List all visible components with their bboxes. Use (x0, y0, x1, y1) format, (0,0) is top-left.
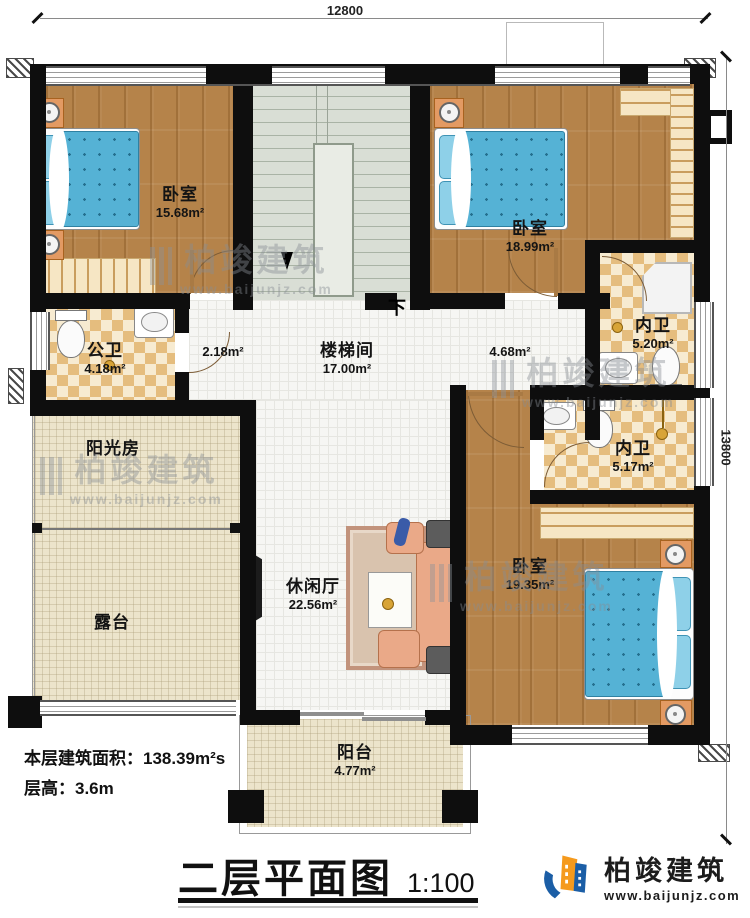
stair-well (313, 143, 354, 297)
wall-stairs-bedroom2 (410, 64, 430, 310)
balcony-name: 阳台 (337, 742, 373, 763)
balcony-area: 4.77m² (334, 763, 375, 779)
sink (598, 352, 638, 384)
room-label-bedroom3: 卧室 19.35m² (470, 556, 590, 594)
bath-public-area: 4.18m² (84, 361, 125, 377)
column-balcony-right (442, 790, 478, 823)
window-bath-public-west (30, 312, 50, 370)
sink (134, 306, 174, 338)
logo-building-icon (540, 848, 596, 904)
wall-pier-north-3 (620, 64, 648, 84)
wall-bedroom2-bottom-left (430, 293, 505, 309)
bath-lower-area: 5.17m² (612, 459, 653, 475)
room-label-bath-lower: 内卫 5.17m² (578, 438, 688, 476)
closet-shelf-bedroom2 (620, 88, 672, 116)
bath-lower-name: 内卫 (615, 438, 651, 459)
hall-left-area-label: 2.18m² (178, 344, 268, 360)
wall-lounge-bottom-left (240, 710, 300, 725)
logo-brand-name: 柏竣建筑 (604, 849, 740, 888)
stairwell-name: 楼梯间 (320, 340, 374, 361)
table-decor (382, 598, 394, 610)
wall-bedroom3-bottom-left (450, 725, 512, 745)
wardrobe-bedroom2 (670, 88, 694, 238)
wall-pier-north-2 (385, 64, 495, 84)
lamp-icon (665, 704, 686, 725)
wall-bath-upper-top (585, 240, 694, 253)
room-label-balcony: 阳台 4.77m² (310, 742, 400, 780)
bed-bedroom2 (434, 128, 568, 230)
hall-right-area-label: 4.68m² (460, 344, 560, 360)
top-dimension-label: 12800 (300, 3, 390, 18)
lounge-name: 休闲厅 (286, 576, 340, 597)
divider-post (32, 523, 42, 533)
door-leaf-bedroom3 (468, 392, 523, 396)
shower-rod (662, 400, 664, 428)
hall-right-area: 4.68m² (489, 344, 530, 360)
wall-lounge-left (240, 400, 256, 725)
wall-bedroom3-bottom-right (648, 725, 710, 745)
room-label-terrace: 露台 (62, 612, 162, 633)
floor-area-text: 本层建筑面积：138.39m²s (24, 744, 225, 769)
bedroom3-name: 卧室 (512, 556, 548, 577)
title-underline (178, 898, 478, 903)
sliding-door-panel (300, 712, 364, 716)
drawing-scale: 1:100 (407, 868, 475, 899)
drawing-title: 二层平面图 (178, 846, 393, 904)
room-label-bath-public: 公卫 4.18m² (50, 340, 160, 378)
sheet-fold (451, 128, 471, 230)
bedroom1-area: 15.68m² (156, 205, 204, 221)
wall-bath-public-right-upper (175, 293, 189, 333)
room-label-bath-upper: 内卫 5.20m² (608, 315, 698, 353)
room-label-stairwell: 楼梯间 17.00m² (292, 340, 402, 378)
bedroom1-name: 卧室 (162, 184, 198, 205)
column-balcony-left (228, 790, 264, 823)
window-bedroom3-south (512, 727, 648, 745)
window-box-glass (711, 116, 727, 138)
room-label-sunroom: 阳光房 (58, 438, 168, 459)
terrace-name: 露台 (94, 612, 130, 633)
stairwell-area: 17.00m² (323, 361, 371, 377)
sliding-door-panel (362, 717, 426, 721)
bedroom2-area: 18.99m² (506, 239, 554, 255)
nightstand (434, 98, 464, 128)
wall-bedroom1-bottom (30, 293, 190, 309)
floor-plan: 12800 13800 (0, 0, 750, 918)
bedroom2-name: 卧室 (512, 218, 548, 239)
shower-tray (642, 262, 692, 314)
wall-bath-upper-left (585, 253, 600, 440)
lamp-icon (665, 544, 686, 565)
right-dimension-label: 13800 (719, 426, 734, 470)
room-label-lounge: 休闲厅 22.56m² (258, 576, 368, 614)
closet-bedroom3 (540, 507, 694, 539)
bath-public-name: 公卫 (87, 340, 123, 361)
wall-sunroom-top (30, 400, 256, 416)
wall-bath-lower-top (530, 385, 694, 400)
bath-upper-area: 5.20m² (632, 336, 673, 352)
room-label-bedroom1: 卧室 15.68m² (115, 184, 245, 222)
sheet-fold (657, 568, 677, 700)
title-underline-thin (178, 906, 478, 908)
blanket (463, 131, 565, 227)
armchair (378, 630, 420, 668)
window-bath-lower-east (694, 398, 714, 486)
top-dimension-line (40, 18, 708, 19)
door-leaf-bedroom1 (190, 250, 194, 293)
room-label-bedroom2: 卧室 18.99m² (460, 218, 600, 256)
nightstand (660, 700, 692, 728)
hatch-left-mid (8, 368, 24, 404)
lamp-icon (439, 102, 460, 123)
stair-direction-arrow (281, 252, 293, 270)
bed-bedroom3 (584, 568, 694, 700)
nightstand (660, 540, 692, 568)
column-terrace (8, 696, 42, 728)
wall-bedroom2-bottom-right (558, 293, 610, 309)
stair-landing-divider (316, 84, 328, 143)
wall-bath-lower-bottom (530, 490, 694, 504)
bath-upper-name: 内卫 (635, 315, 671, 336)
company-logo: 柏竣建筑 www.baijunjz.com (540, 848, 740, 904)
lounge-area: 22.56m² (289, 597, 337, 613)
sheet-fold (49, 128, 69, 230)
closet-bedroom1 (36, 258, 156, 294)
divider-post (230, 523, 240, 533)
bedroom3-area: 19.35m² (506, 577, 554, 593)
sunroom-terrace-divider (32, 528, 240, 530)
drawing-title-block: 二层平面图 1:100 (178, 846, 475, 904)
bay-roof-outline (506, 22, 604, 66)
wall-bedroom3-left (450, 385, 466, 725)
hall-left-area: 2.18m² (202, 344, 243, 360)
sunroom-name: 阳光房 (86, 438, 140, 459)
wall-lounge-bottom-right (425, 710, 466, 725)
wall-bath-lower-left (530, 400, 544, 440)
floor-height-text: 层高：3.6m (24, 774, 114, 799)
stair-down-label: 下 (388, 294, 406, 320)
window-terrace-south (40, 700, 236, 716)
wall-pier-north-1 (206, 64, 272, 84)
logo-brand-url: www.baijunjz.com (604, 888, 740, 903)
window-north-band (46, 66, 690, 86)
